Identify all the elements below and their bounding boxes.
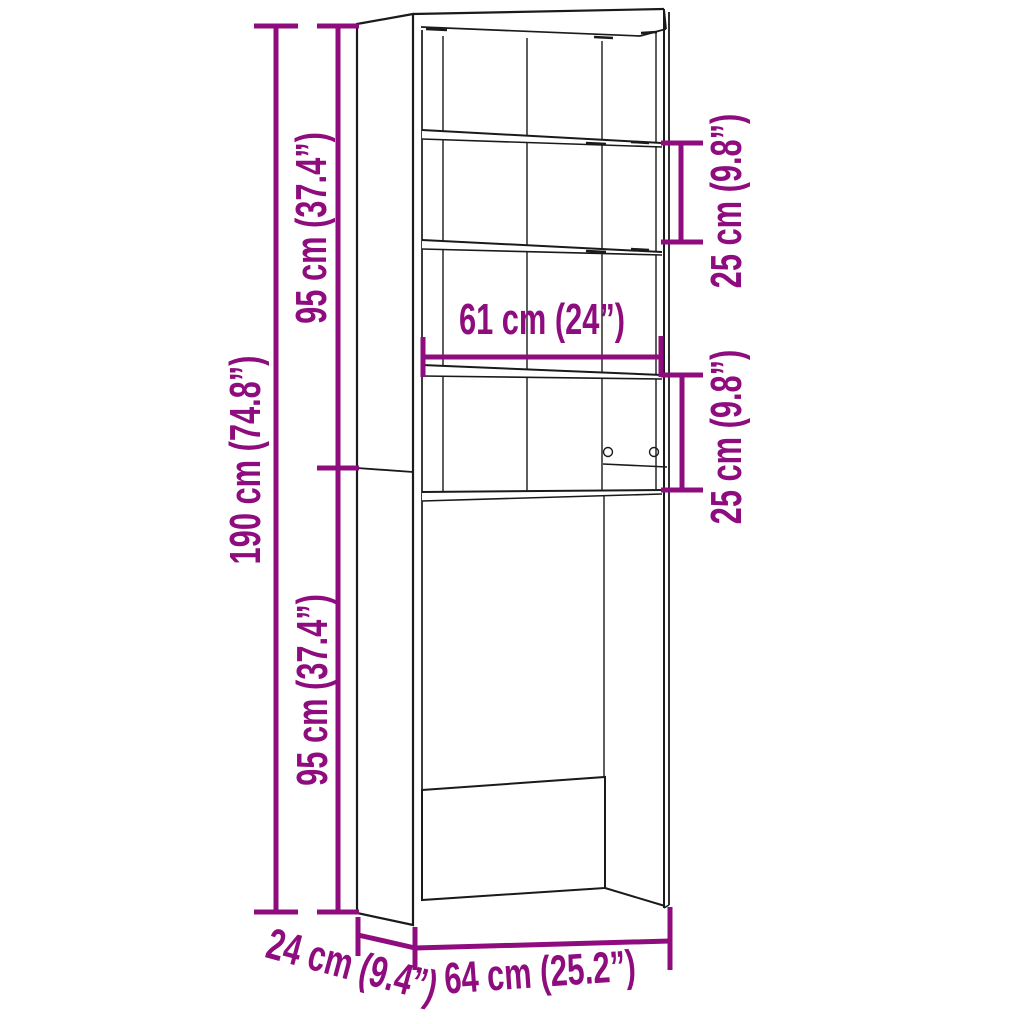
ceiling-front-edge bbox=[421, 27, 640, 36]
right-panel-bottom-edge bbox=[605, 888, 665, 906]
label-middle-shelf-spacing: 25 cm (9.8”) bbox=[705, 350, 749, 525]
diagram-canvas: 190 cm (74.8”) 95 cm (37.4”) 95 cm (37.4… bbox=[0, 0, 1024, 1024]
label-upper-section-height: 95 cm (37.4”) bbox=[290, 132, 334, 324]
dim-top-shelf-spacing bbox=[661, 143, 703, 242]
dim-middle-shelf-spacing bbox=[661, 375, 703, 490]
furniture-line-drawing bbox=[0, 0, 1024, 1024]
label-total-height: 190 cm (74.8”) bbox=[224, 356, 268, 565]
top-outer-edge bbox=[413, 9, 664, 14]
fitting-seam bbox=[603, 464, 667, 467]
cabinet-interior bbox=[422, 30, 667, 900]
label-top-shelf-spacing: 25 cm (9.8”) bbox=[705, 114, 749, 289]
label-inner-width: 61 cm (24”) bbox=[459, 298, 625, 342]
cam-hole-left bbox=[604, 448, 613, 457]
cam-hole-right bbox=[650, 448, 659, 457]
lower-back-panel bbox=[422, 777, 605, 900]
label-lower-section-height: 95 cm (37.4”) bbox=[291, 594, 335, 786]
cabinet-shelves bbox=[421, 27, 666, 501]
